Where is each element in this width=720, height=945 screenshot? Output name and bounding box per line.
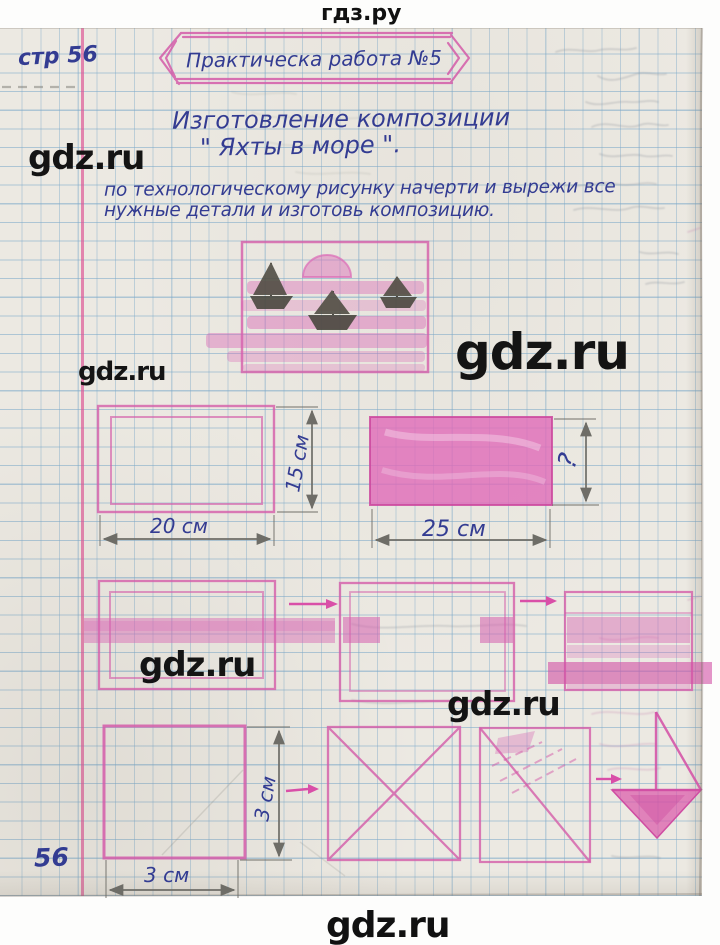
site-header-brand: гдз.ру [321,1,402,26]
watermark-gdz-2: gdz.ru [78,359,166,385]
scanned-notebook-screenshot: 15 см 20 см 25 см ? [0,0,720,945]
site-footer-brand: gdz.ru [326,905,450,945]
heading-line-2: " Яхты в море ". [200,130,401,162]
watermark-gdz-1: gdz.ru [28,141,144,175]
watermark-gdz-4: gdz.ru [139,648,255,682]
bottom-page-number: 56 [34,842,70,872]
task-line-2: нужные детали и изготовь композицию. [104,200,495,221]
heading-line-1: Изготовление композиции [172,103,510,135]
task-line-1: по технологическому рисунку начерти и вы… [104,176,616,201]
watermark-gdz-5: gdz.ru [447,687,560,720]
banner-title: Практическа работа №5 [183,37,445,82]
corner-page-label: стр 56 [17,42,98,71]
watermark-gdz-3: gdz.ru [455,327,629,377]
